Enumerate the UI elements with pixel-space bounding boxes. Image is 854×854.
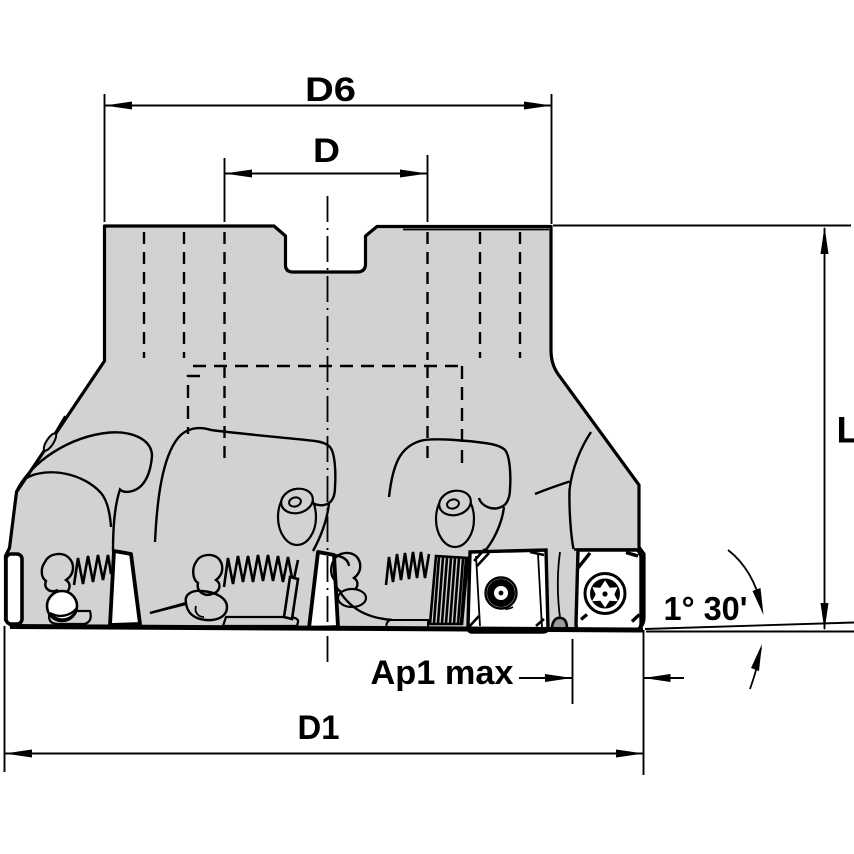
svg-text:1° 30': 1° 30' bbox=[664, 590, 748, 627]
svg-text:D: D bbox=[313, 132, 340, 170]
svg-text:D6: D6 bbox=[305, 71, 356, 109]
svg-text:L: L bbox=[837, 410, 854, 451]
svg-text:Ap1 max: Ap1 max bbox=[371, 654, 514, 692]
svg-text:D1: D1 bbox=[298, 709, 340, 747]
